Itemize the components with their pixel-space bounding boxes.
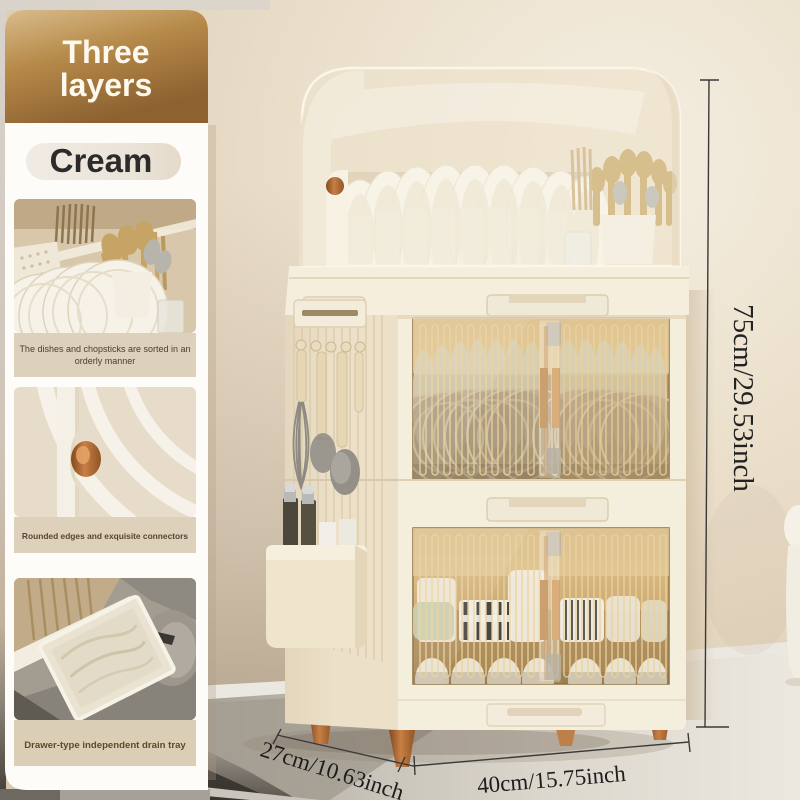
- svg-text:layers: layers: [60, 67, 153, 103]
- svg-text:75cm/29.53inch: 75cm/29.53inch: [727, 304, 759, 492]
- svg-text:Three: Three: [62, 34, 149, 70]
- svg-text:Cream: Cream: [50, 142, 153, 179]
- svg-text:Rounded edges and exquisite co: Rounded edges and exquisite connectors: [22, 531, 188, 541]
- svg-text:orderly manner: orderly manner: [75, 356, 136, 366]
- svg-text:Drawer-type independent drain: Drawer-type independent drain tray: [24, 740, 186, 751]
- svg-text:The dishes and chopsticks are: The dishes and chopsticks are sorted in …: [19, 344, 190, 354]
